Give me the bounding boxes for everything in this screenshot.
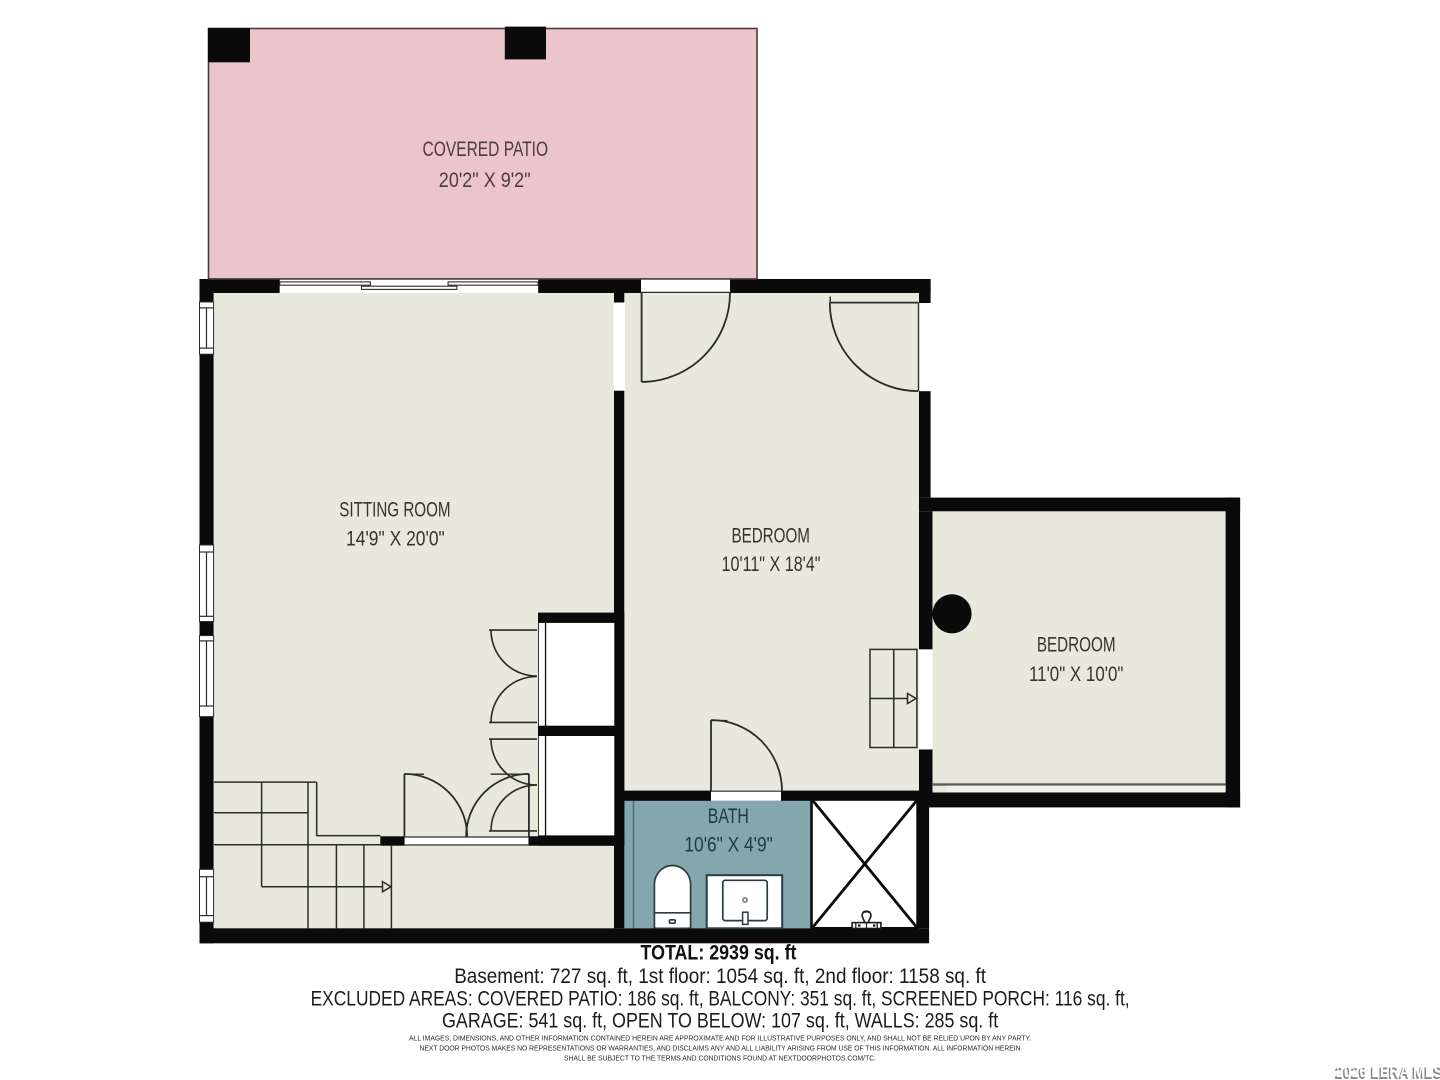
svg-text:14'9" X 20'0": 14'9" X 20'0" xyxy=(346,526,445,550)
svg-text:20'2" X 9'2": 20'2" X 9'2" xyxy=(439,168,531,192)
svg-text:SHALL BE SUBJECT TO THE TERMS: SHALL BE SUBJECT TO THE TERMS AND CONDIT… xyxy=(564,1053,876,1062)
svg-text:2026 LERA MLS: 2026 LERA MLS xyxy=(1336,1063,1440,1080)
svg-text:GARAGE: 541 sq. ft, OPEN TO BE: GARAGE: 541 sq. ft, OPEN TO BELOW: 107 s… xyxy=(442,1009,998,1032)
svg-text:10'6" X 4'9": 10'6" X 4'9" xyxy=(684,833,772,857)
svg-text:BEDROOM: BEDROOM xyxy=(731,524,810,548)
svg-text:EXCLUDED AREAS: COVERED PATIO:: EXCLUDED AREAS: COVERED PATIO: 186 sq. f… xyxy=(311,987,1130,1010)
svg-text:Basement: 727 sq. ft, 1st floo: Basement: 727 sq. ft, 1st floor: 1054 sq… xyxy=(454,965,986,988)
svg-text:ALL IMAGES, DIMENSIONS, AND OT: ALL IMAGES, DIMENSIONS, AND OTHER INFORM… xyxy=(409,1034,1031,1043)
svg-text:COVERED PATIO: COVERED PATIO xyxy=(423,137,549,161)
svg-text:BATH: BATH xyxy=(708,804,749,828)
svg-text:TOTAL: 2939 sq. ft: TOTAL: 2939 sq. ft xyxy=(641,941,797,964)
svg-text:NEXT DOOR PHOTOS MAKES NO REPR: NEXT DOOR PHOTOS MAKES NO REPRESENTATION… xyxy=(420,1044,1021,1053)
svg-text:10'11" X 18'4": 10'11" X 18'4" xyxy=(722,552,821,576)
svg-text:11'0" X 10'0": 11'0" X 10'0" xyxy=(1029,662,1123,686)
svg-text:SITTING ROOM: SITTING ROOM xyxy=(339,498,450,522)
svg-text:BEDROOM: BEDROOM xyxy=(1037,633,1116,657)
